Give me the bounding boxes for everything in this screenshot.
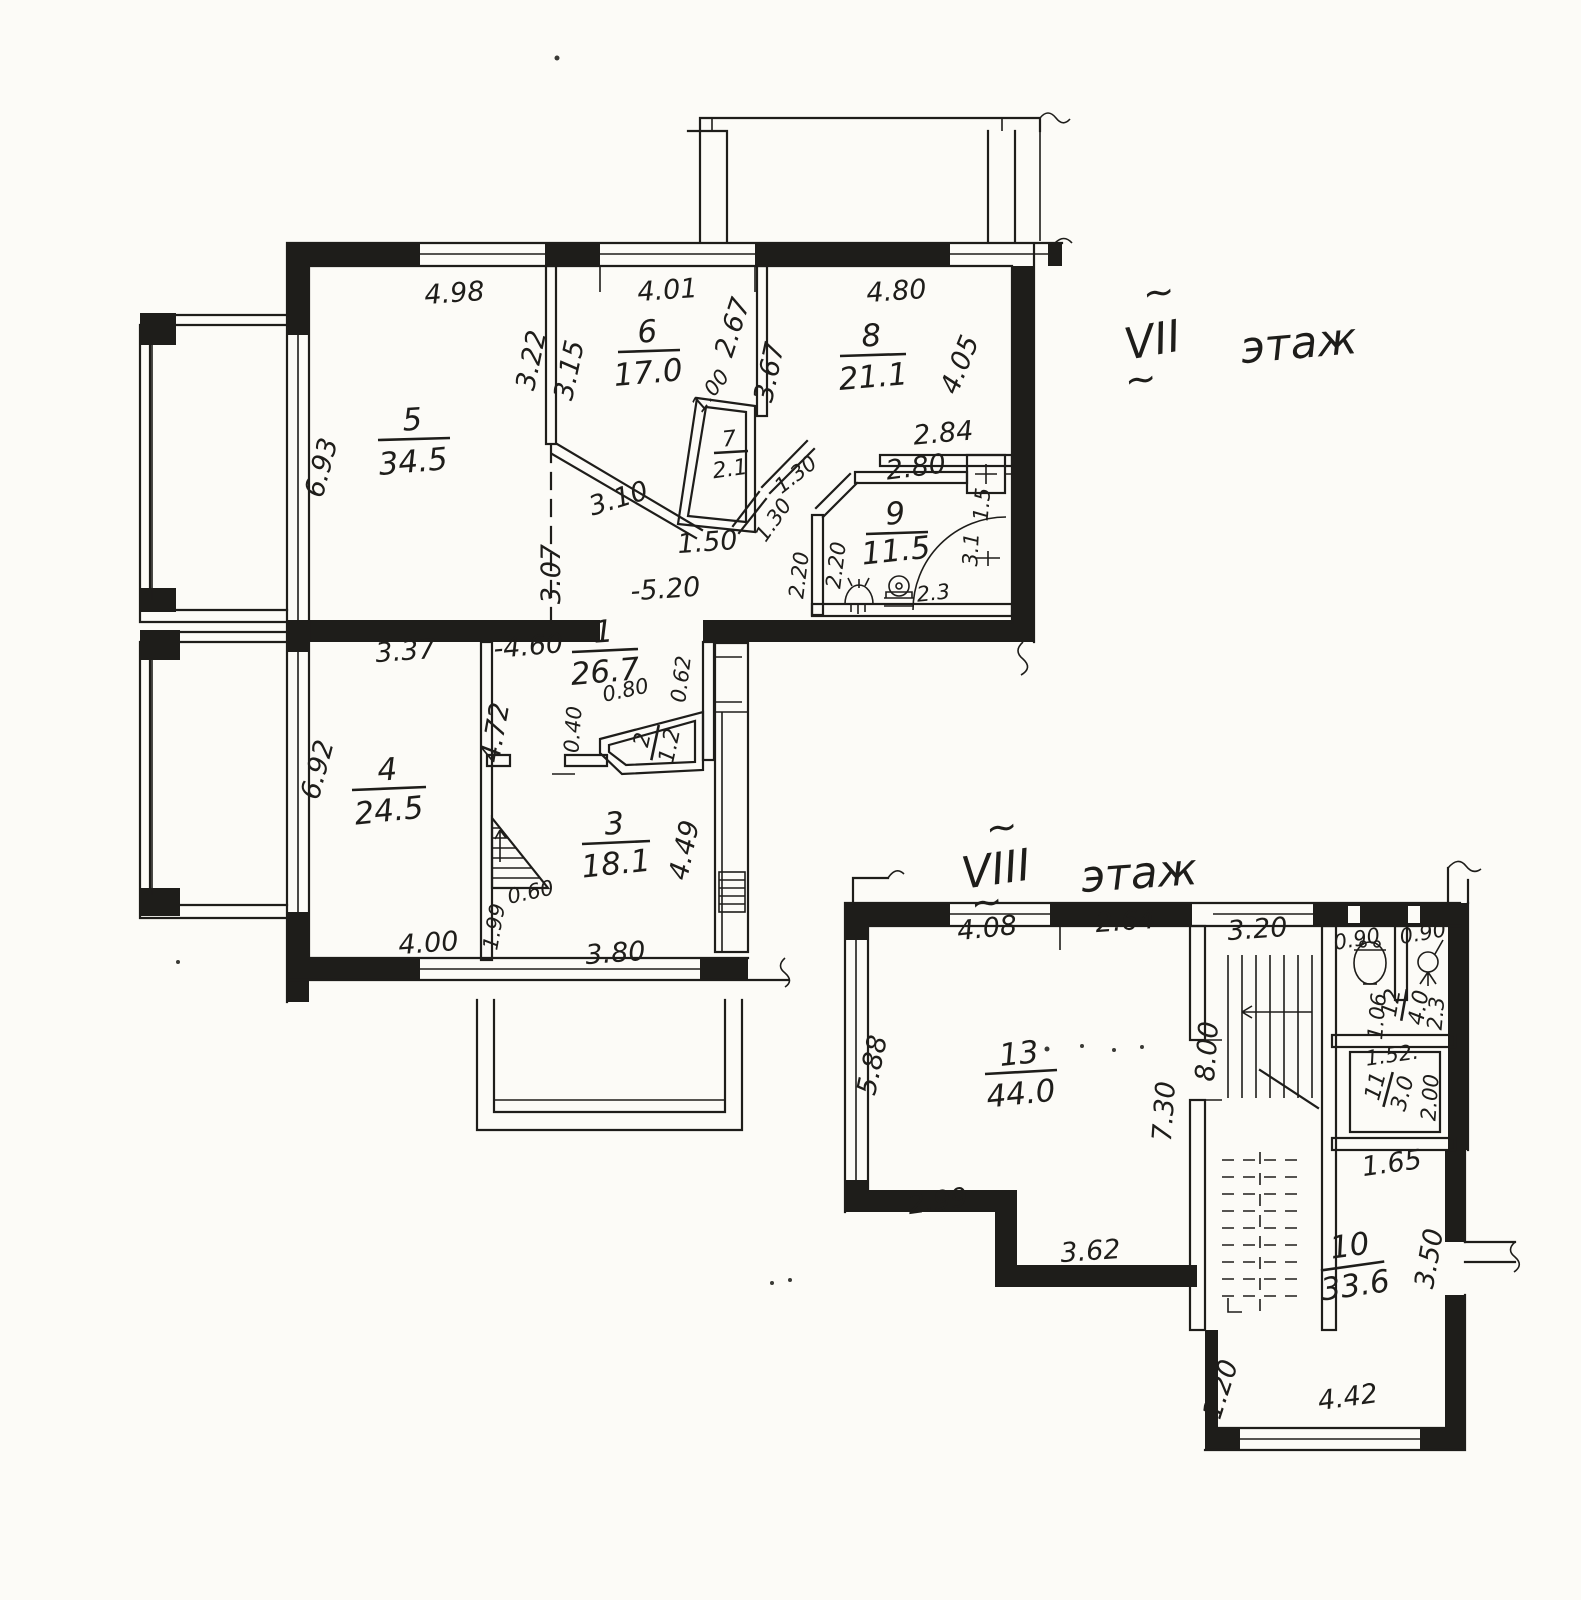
room-number: 4: [376, 751, 398, 788]
room-label-3: 318.1: [580, 805, 652, 885]
dim-label: 1.5: [969, 487, 996, 522]
dim-label: 1.52.: [1364, 1039, 1420, 1070]
room-number: 3: [603, 805, 625, 842]
dim-label: 4.49: [663, 818, 706, 883]
turret-right: [1448, 868, 1468, 903]
dim-label: 1.20: [1197, 1356, 1245, 1423]
room-number: 5: [401, 401, 423, 438]
room-label-11: 113.0: [1359, 1066, 1420, 1114]
floor-plan-canvas: ~ VII ~ этаж ~ VIII ~ этаж 534.5 617.0 7…: [0, 0, 1581, 1600]
room-area: 17.0: [612, 352, 684, 394]
dim-label: 2.80: [884, 449, 947, 487]
room-area: 44.0: [985, 1073, 1057, 1116]
dim-label: 0.40: [559, 705, 586, 753]
dim-label: 4.42: [1316, 1378, 1380, 1417]
balcony-top: [688, 113, 1070, 241]
dim-label: 2.00: [1416, 1073, 1443, 1121]
radiator-icon: [719, 872, 745, 912]
dim-label: 0.60: [505, 876, 556, 909]
room-label-5: 534.5: [377, 401, 450, 483]
room-number: 9: [884, 495, 906, 532]
balcony-lower-left: [140, 630, 287, 918]
turret-left: [853, 878, 888, 903]
dim-label: -5.20: [629, 572, 701, 608]
room-area: 2.1: [711, 455, 749, 485]
room-label-4: 424.5: [352, 751, 426, 832]
dim-label: 3.50: [1409, 1226, 1450, 1291]
dim-label: 2.3: [915, 579, 951, 606]
dim-label: 1.06: [1363, 992, 1391, 1041]
stairs-down-flight-icon: [1222, 1152, 1298, 1318]
dim-label: 2.99: [906, 1182, 970, 1221]
room-label-6: 617.0: [612, 313, 684, 394]
room-label-9: 911.5: [860, 495, 932, 572]
dim-label: 4.05: [934, 331, 985, 398]
room-number: 8: [860, 317, 882, 354]
room-number: 10: [1328, 1226, 1372, 1267]
room-area: 21.1: [837, 356, 909, 398]
wall-break-icon: [1018, 642, 1028, 675]
room-label-10: 1033.6: [1313, 1224, 1392, 1309]
toilet-icon: [884, 576, 914, 606]
dim-label: 3.80: [584, 936, 646, 971]
scanned-floor-plan-page: ~ VII ~ этаж ~ VIII ~ этаж 534.5 617.0 7…: [0, 0, 1581, 1600]
room-label-7: 72.1: [711, 426, 749, 484]
dim-label: 6.92: [295, 737, 341, 803]
dim-label: 0.62: [666, 654, 696, 703]
room-number: 6: [636, 313, 658, 350]
dim-label: 1.30: [770, 451, 822, 499]
dim-label: -4.60: [492, 628, 564, 665]
dim-label: 7.30: [1147, 1080, 1182, 1142]
door-opening-ticks: [714, 657, 742, 702]
wall-break-icon: [781, 958, 790, 987]
dim-label: 1.50: [676, 525, 738, 560]
dim-label: 6.93: [299, 435, 345, 501]
dim-label: 2.64: [1094, 904, 1156, 939]
room-number: 1: [592, 613, 614, 650]
wall-break-icon: [1511, 1242, 1520, 1272]
dim-label: 4.08: [956, 910, 1019, 947]
stairs-up-flight-icon: [1228, 955, 1318, 1108]
wall-break-icon: [888, 871, 904, 878]
wall-room9-left: [812, 515, 823, 615]
dim-label: 3.20: [1226, 912, 1288, 947]
floor7-title: ~ VII ~ этаж: [1120, 269, 1359, 403]
dim-label: 1.30: [750, 494, 796, 546]
dim-label: 3.67: [748, 340, 791, 405]
dim-label: 2.20: [821, 540, 851, 589]
dim-label: 1.99: [478, 902, 510, 952]
room-label-8: 821.1: [837, 317, 909, 398]
room-number: 7: [721, 426, 738, 452]
dim-label: 3.37: [374, 634, 436, 669]
arrow-icon: [1242, 1006, 1312, 1018]
balcony-upper-left: [140, 313, 287, 622]
shower-icon: [1418, 940, 1443, 986]
room-number: 13: [997, 1034, 1040, 1074]
dim-label: 4.01: [636, 273, 698, 308]
room-area: 34.5: [377, 441, 449, 483]
dim-label: 3.15: [548, 338, 591, 403]
tilde-mark: ~: [1123, 356, 1159, 403]
dim-label: 3.62: [1059, 1234, 1121, 1269]
dim-label: 4.80: [865, 274, 927, 309]
tilde-mark: ~: [1141, 269, 1177, 316]
dim-label: 3.07: [536, 544, 567, 604]
dim-label: 4.98: [423, 276, 485, 311]
dim-label: 3.10: [585, 475, 652, 522]
wall-break-icon: [1040, 113, 1070, 123]
dim-label: 2.67: [709, 294, 757, 361]
room-label-13: 1344.0: [985, 1034, 1057, 1115]
wall-room9-chamfer: [816, 474, 857, 517]
flight-end-mark: [1228, 1298, 1242, 1312]
dim-label: 4.00: [397, 926, 459, 961]
dim-label: 5.88: [851, 1033, 894, 1098]
dim-label: 2.84: [912, 415, 975, 451]
room-area: 11.5: [860, 530, 932, 573]
duct-shaft: [715, 643, 748, 952]
room-area: 24.5: [353, 790, 425, 833]
room-area: 18.1: [580, 843, 652, 886]
bidet-icon: [845, 578, 873, 614]
wall-corridor-right: [703, 642, 714, 760]
balcony-bottom: [477, 1000, 742, 1130]
floor8-word: этаж: [1079, 844, 1199, 903]
floor7-word: этаж: [1239, 313, 1360, 374]
dim-label: 8.00: [1190, 1020, 1225, 1082]
floor8-dims: 4.08 2.64 3.20 0.90 0.90 5.88 7.30 8.00 …: [851, 904, 1450, 1423]
dim-label: 2.20: [784, 550, 814, 599]
dim-label: 2.3: [1423, 996, 1450, 1031]
wall-break-icon: [1448, 861, 1481, 871]
dim-label: 3.1: [958, 532, 984, 567]
